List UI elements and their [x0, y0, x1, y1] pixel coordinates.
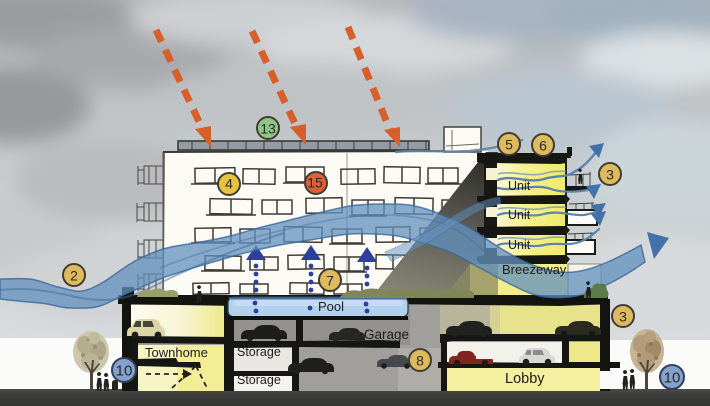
svg-text:8: 8	[416, 353, 424, 369]
svg-text:7: 7	[326, 273, 334, 289]
svg-text:Unit: Unit	[508, 179, 531, 193]
svg-text:Breezeway: Breezeway	[502, 262, 567, 277]
svg-text:13: 13	[260, 121, 276, 137]
svg-text:Townhome: Townhome	[145, 345, 208, 360]
svg-text:Lobby: Lobby	[505, 371, 545, 387]
svg-text:15: 15	[307, 175, 323, 191]
svg-text:3: 3	[606, 167, 614, 183]
svg-text:Unit: Unit	[508, 238, 531, 252]
svg-text:4: 4	[225, 176, 233, 192]
svg-text:Unit: Unit	[508, 208, 531, 222]
svg-text:3: 3	[619, 309, 627, 325]
svg-text:Pool: Pool	[318, 299, 344, 314]
svg-text:10: 10	[116, 363, 133, 380]
svg-text:5: 5	[505, 137, 513, 153]
svg-text:10: 10	[664, 370, 681, 387]
svg-text:6: 6	[539, 138, 547, 154]
svg-text:2: 2	[70, 268, 78, 284]
svg-text:Garage: Garage	[364, 327, 409, 342]
